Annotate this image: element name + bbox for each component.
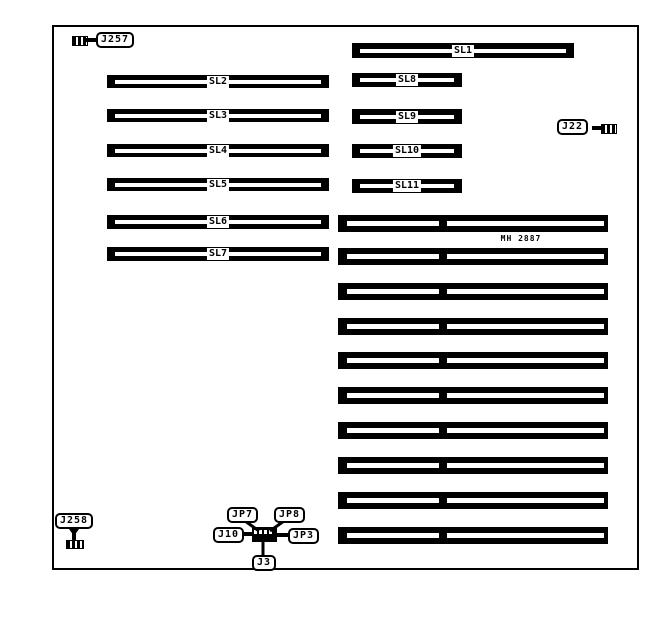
connector-label-j10: J10 [213,527,244,543]
connector-label-j257: J257 [96,32,134,48]
connector-label-jp8: JP8 [274,507,305,523]
board-diagram: SL2 SL3 SL4 SL5 SL6 SL7 SL1 SL8 SL9 SL10… [0,0,649,620]
connector-label-j258: J258 [55,513,93,529]
leader-arrow-j258 [69,529,79,536]
connector-label-j22: J22 [557,119,588,135]
connector-label-j3: J3 [252,555,276,571]
connector-label-jp3: JP3 [288,528,319,544]
leader-lines [0,0,649,620]
connector-label-jp7: JP7 [227,507,258,523]
